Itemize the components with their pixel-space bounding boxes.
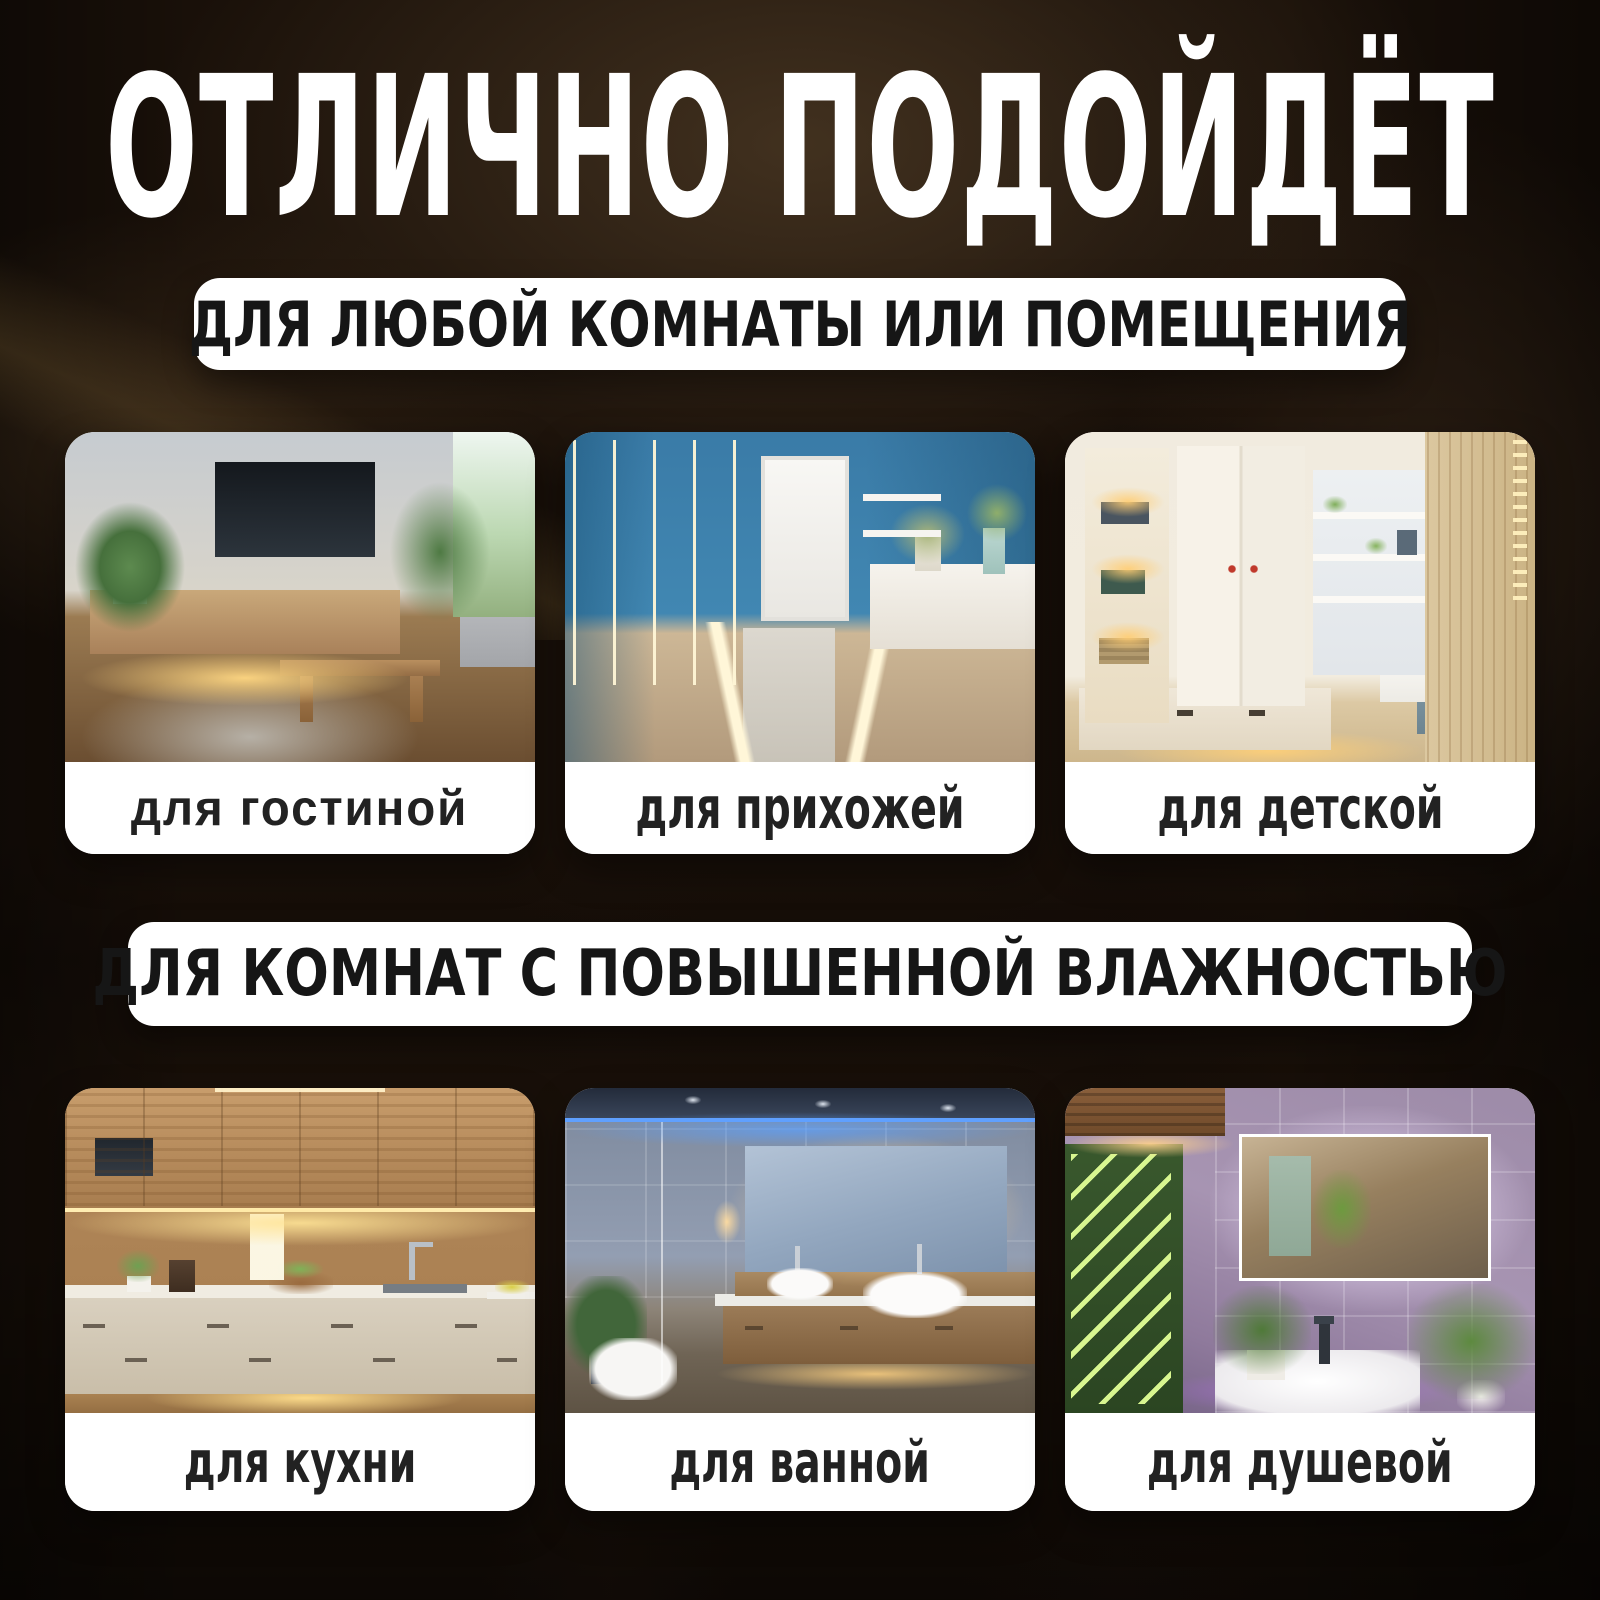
cards-row-humid-rooms: для кухни для ванной для душевой — [65, 1088, 1535, 1511]
card-kids-room: для детской — [1065, 432, 1535, 854]
section-banner-humid-rooms-text: ДЛЯ КОМНАТ С ПОВЫШЕННОЙ ВЛАЖНОСТЬЮ — [92, 937, 1507, 1011]
photo-kids-room — [1065, 432, 1535, 762]
card-label-kids-room: для детской — [1065, 762, 1535, 854]
cards-row-any-room: для гостиной для прихожей для детской — [65, 432, 1535, 854]
section-banner-any-room: ДЛЯ ЛЮБОЙ КОМНАТЫ ИЛИ ПОМЕЩЕНИЯ — [194, 278, 1406, 370]
card-label-bathroom: для ванной — [565, 1413, 1035, 1511]
photo-living-room — [65, 432, 535, 762]
card-kitchen: для кухни — [65, 1088, 535, 1511]
led-strip-rooms-poster: ОТЛИЧНО ПОДОЙДЁТ ДЛЯ ЛЮБОЙ КОМНАТЫ ИЛИ П… — [0, 0, 1600, 1600]
card-label-living-room-text: для гостиной — [131, 779, 468, 837]
card-label-living-room: для гостиной — [65, 762, 535, 854]
photo-shower — [1065, 1088, 1535, 1413]
page-title: ОТЛИЧНО ПОДОЙДЁТ — [0, 64, 1600, 232]
photo-hallway — [565, 432, 1035, 762]
section-banner-humid-rooms: ДЛЯ КОМНАТ С ПОВЫШЕННОЙ ВЛАЖНОСТЬЮ — [128, 922, 1472, 1026]
photo-bathroom — [565, 1088, 1035, 1413]
card-label-bathroom-text: для ванной — [670, 1428, 931, 1496]
card-bathroom: для ванной — [565, 1088, 1035, 1511]
card-hallway: для прихожей — [565, 432, 1035, 854]
card-label-hallway-text: для прихожей — [635, 774, 964, 842]
card-shower: для душевой — [1065, 1088, 1535, 1511]
card-label-kids-room-text: для детской — [1157, 774, 1443, 842]
card-label-hallway: для прихожей — [565, 762, 1035, 854]
card-label-kitchen: для кухни — [65, 1413, 535, 1511]
card-living-room: для гостиной — [65, 432, 535, 854]
photo-kitchen — [65, 1088, 535, 1413]
card-label-kitchen-text: для кухни — [184, 1428, 417, 1496]
card-label-shower: для душевой — [1065, 1413, 1535, 1511]
page-title-text: ОТЛИЧНО ПОДОЙДЁТ — [105, 64, 1495, 232]
card-label-shower-text: для душевой — [1147, 1428, 1453, 1496]
section-banner-any-room-text: ДЛЯ ЛЮБОЙ КОМНАТЫ ИЛИ ПОМЕЩЕНИЯ — [189, 288, 1412, 361]
